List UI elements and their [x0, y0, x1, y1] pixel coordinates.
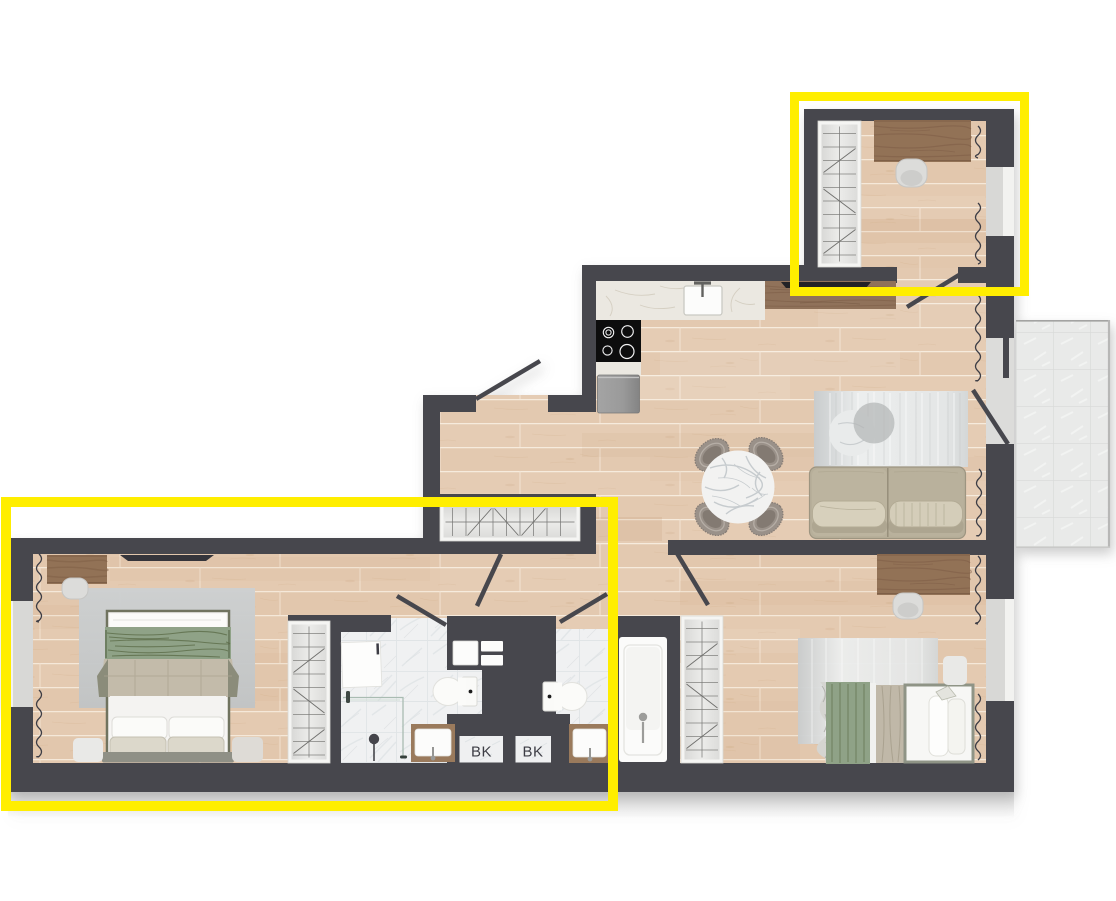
- svg-text:BK: BK: [522, 744, 543, 761]
- svg-text:BK: BK: [471, 744, 492, 761]
